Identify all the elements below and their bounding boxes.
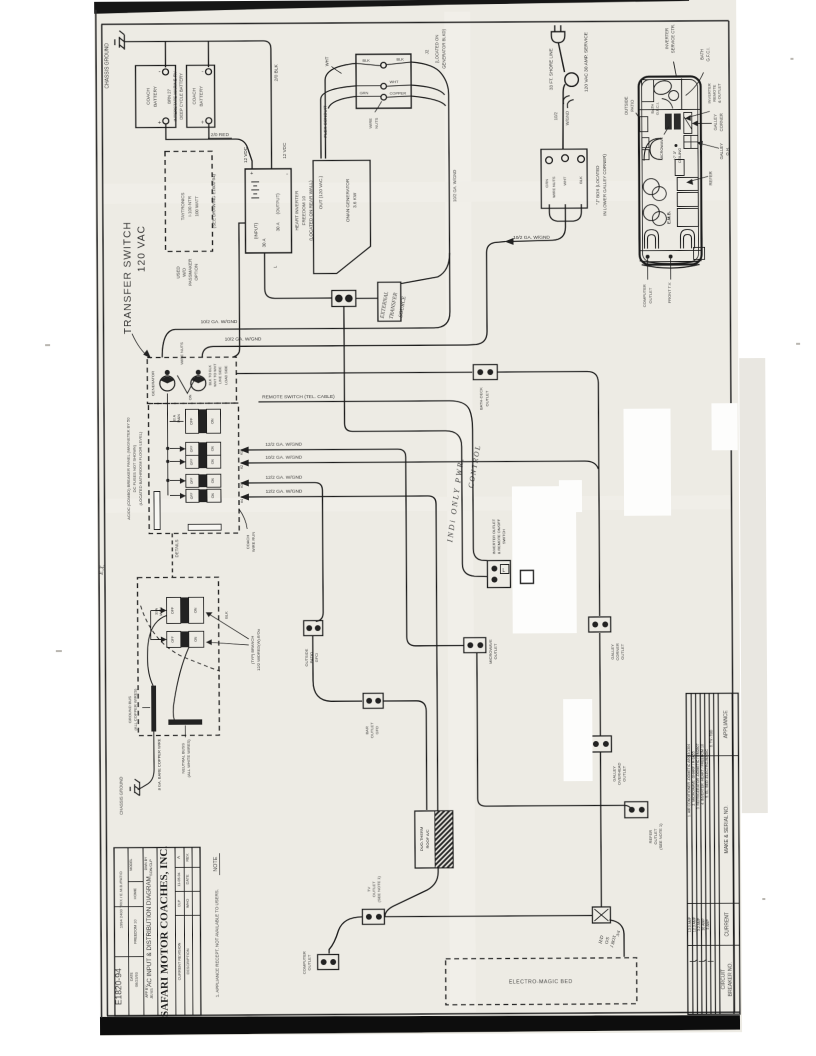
svg-text:12 VDC: 12 VDC	[282, 142, 287, 159]
svg-text:OUT (120 VAC.): OUT (120 VAC.)	[318, 175, 323, 209]
svg-text:OPTION: OPTION	[194, 264, 199, 281]
svg-text:BREAKER NO.: BREAKER NO.	[728, 962, 734, 996]
svg-text:W/GND: W/GND	[565, 111, 570, 125]
svg-text:5. EL. BED -ELECTRO-MAGIC: 5. EL. BED -ELECTRO-MAGIC	[705, 749, 709, 798]
svg-text:REFER: REFER	[708, 171, 713, 185]
svg-text:WHT: WHT	[390, 79, 400, 84]
svg-text:COACH: COACH	[245, 535, 250, 550]
svg-text:-: -	[202, 69, 204, 75]
svg-text:FRONT T.V.: FRONT T.V.	[667, 282, 672, 303]
svg-text:OUTLET: OUTLET	[620, 643, 625, 659]
svg-text:E1820-94: E1820-94	[113, 968, 123, 1005]
svg-text:#2: #2	[240, 465, 244, 469]
svg-text:& OUTLET: & OUTLET	[717, 83, 722, 103]
svg-text:+: +	[158, 120, 162, 126]
svg-text:MICROWAVE: MICROWAVE	[660, 136, 664, 160]
svg-text:DATE: DATE	[186, 874, 190, 884]
svg-text:WHT TO WHT: WHT TO WHT	[213, 363, 217, 387]
svg-text:13.0 AMP: 13.0 AMP	[688, 916, 692, 932]
svg-text:+7' 3": +7' 3"	[673, 150, 677, 160]
svg-text:O.H.: O.H.	[725, 147, 730, 156]
svg-text:INVERTER: INVERTER	[664, 28, 669, 49]
svg-text:TRANSFER SWITCH: TRANSFER SWITCH	[122, 221, 134, 334]
svg-text:(LOCATED ON: (LOCATED ON	[434, 35, 439, 63]
svg-text:NEUTRAL BUSS: NEUTRAL BUSS	[180, 743, 185, 774]
svg-text:120 VAC: 120 VAC	[136, 225, 147, 272]
svg-text:GFCI: GFCI	[314, 653, 319, 663]
svg-text:120 VAC 30 AMP. SERVICE: 120 VAC 30 AMP. SERVICE	[583, 32, 589, 92]
svg-text:DETAILS: DETAILS	[174, 539, 179, 557]
svg-text:NOTE: NOTE	[213, 856, 219, 871]
svg-text:12/2 W/DRED(W)-B'Ou: 12/2 W/DRED(W)-B'Ou	[256, 629, 261, 671]
svg-text:30 A: 30 A	[275, 222, 280, 231]
svg-text:"J" BOX (LOCATED: "J" BOX (LOCATED	[595, 166, 600, 205]
svg-text:J2: J2	[424, 49, 429, 54]
svg-text:BATH: BATH	[699, 49, 704, 60]
svg-text:G.F.C.I.: G.F.C.I.	[656, 102, 660, 115]
svg-text:30 A: 30 A	[261, 238, 266, 247]
svg-text:BLK: BLK	[578, 176, 583, 184]
svg-text:ROOF A/C: ROOF A/C	[425, 829, 430, 848]
svg-text:OUTLET: OUTLET	[648, 287, 653, 303]
svg-text:AC/DC (COMBO) BREAKER PANEL (M: AC/DC (COMBO) BREAKER PANEL (MAGNETEK BY…	[126, 417, 132, 520]
svg-text:WHT: WHT	[324, 56, 329, 66]
svg-text:FLEX CONDUIT: FLEX CONDUIT	[323, 105, 328, 138]
svg-text:PATIO: PATIO	[630, 99, 635, 112]
svg-text:OUTLET: OUTLET	[493, 643, 498, 659]
svg-text:30 A: 30 A	[155, 607, 159, 615]
svg-text:ON: ON	[211, 418, 215, 424]
svg-text:8 GA. BARE COPPER WIRE: 8 GA. BARE COPPER WIRE	[156, 738, 161, 790]
svg-text:SON/CLP: SON/CLP	[149, 859, 153, 876]
svg-text:BRN 27: BRN 27	[167, 88, 172, 103]
svg-text:PASSMAKER: PASSMAKER	[188, 259, 193, 286]
svg-text:3.2 AMP: 3.2 AMP	[697, 917, 701, 931]
svg-text:LINE SIDE: LINE SIDE	[218, 366, 222, 384]
svg-text:TAYTRONICS: TAYTRONICS	[180, 192, 185, 220]
svg-text:WIRE NUTS: WIRE NUTS	[552, 176, 556, 198]
svg-text:BLK TO BLK: BLK TO BLK	[208, 364, 212, 385]
svg-text:(SEE NOTE 1): (SEE NOTE 1)	[658, 823, 663, 850]
svg-text:INVERTER OUTLET: INVERTER OUTLET	[492, 518, 496, 554]
svg-text:SWITCH: SWITCH	[502, 529, 506, 544]
svg-text:+: +	[250, 171, 253, 177]
svg-text:(INPUT): (INPUT)	[253, 222, 258, 239]
svg-text:(TYP) BRANCH: (TYP) BRANCH	[250, 636, 255, 665]
svg-text:SERVICE CTR.: SERVICE CTR.	[670, 24, 675, 53]
svg-text:WHO: WHO	[186, 899, 190, 908]
svg-text:L: L	[502, 568, 505, 574]
svg-text:WIRE: WIRE	[368, 118, 373, 129]
svg-text:OFF: OFF	[190, 446, 194, 452]
svg-text:OUTLET: OUTLET	[307, 954, 312, 970]
svg-text:OFF: OFF	[190, 459, 194, 465]
svg-text:LOAD SIDE: LOAD SIDE	[224, 365, 228, 385]
svg-text:CLP: CLP	[177, 899, 181, 907]
svg-text:10/2 GA. W/GND: 10/2 GA. W/GND	[201, 319, 238, 325]
svg-text:REV.: REV.	[186, 853, 190, 862]
svg-text:#1: #1	[240, 451, 244, 455]
svg-text:11-05-94: 11-05-94	[177, 872, 181, 886]
svg-text:OFF: OFF	[190, 493, 194, 499]
svg-text:NUTS: NUTS	[374, 117, 379, 128]
svg-text:CURRENT REVISION: CURRENT REVISION	[178, 942, 182, 980]
svg-text:30 A: 30 A	[173, 414, 177, 422]
svg-text:5 AMP: 5 AMP	[706, 919, 710, 930]
svg-text:ON: ON	[211, 493, 215, 499]
svg-text:ON: ON	[194, 607, 198, 613]
svg-text:BATH: BATH	[651, 103, 655, 113]
svg-text:30 AMP: 30 AMP	[701, 918, 705, 931]
svg-text:HOME: HOME	[133, 887, 137, 899]
svg-text:GALLEY: GALLEY	[719, 143, 724, 160]
svg-text:& REMOTE ON/OFF: & REMOTE ON/OFF	[497, 518, 501, 554]
svg-text:10/2 GA. W/GND: 10/2 GA. W/GND	[225, 336, 262, 342]
svg-text:REMOTE SWITCH (TEL. CABLE): REMOTE SWITCH (TEL. CABLE)	[262, 394, 335, 400]
svg-text:ELECTRO-MAGIC BED: ELECTRO-MAGIC BED	[509, 979, 573, 985]
svg-text:#3: #3	[240, 484, 244, 488]
svg-text:OUTLET: OUTLET	[622, 765, 627, 781]
svg-text:BLK: BLK	[224, 611, 229, 619]
svg-text:ON: ON	[211, 478, 215, 484]
svg-text:SAFARI MOTOR COACHES, INC.: SAFARI MOTOR COACHES, INC.	[158, 846, 171, 1017]
svg-text:OFF: OFF	[190, 478, 194, 484]
svg-text:BLK: BLK	[362, 58, 370, 63]
svg-text:ON: ON	[188, 394, 192, 400]
svg-text:APPLIANCE: APPLIANCE	[723, 710, 729, 739]
svg-text:BATH-DECK: BATH-DECK	[478, 387, 483, 410]
svg-text:BATTERY: BATTERY	[199, 86, 204, 107]
svg-text:A: A	[176, 856, 181, 859]
svg-text:DUO-THERM: DUO-THERM	[419, 827, 424, 851]
svg-text:OFF: OFF	[190, 417, 194, 425]
svg-text:GFD: GFD	[374, 726, 379, 735]
svg-text:10/2: 10/2	[553, 111, 558, 120]
svg-text:ONAN GENERATOR: ONAN GENERATOR	[345, 178, 350, 222]
svg-text:3.6 KW: 3.6 KW	[352, 192, 357, 208]
svg-text:(OUTPUT): (OUTPUT)	[275, 193, 280, 215]
svg-text:ON: ON	[194, 636, 198, 642]
svg-text:JE/XS: JE/XS	[150, 988, 154, 999]
svg-text:GENERATOR BLKD): GENERATOR BLKD)	[441, 28, 446, 68]
svg-text:GENERATOR: GENERATOR	[150, 371, 155, 396]
svg-text:MODEL: MODEL	[129, 859, 133, 871]
svg-text:BLK: BLK	[396, 57, 404, 62]
svg-text:(ALL WHITE WIRES): (ALL WHITE WIRES)	[186, 739, 191, 778]
svg-text:W/O: W/O	[182, 267, 187, 276]
svg-text:-: -	[286, 172, 288, 178]
svg-text:INTERSTATE MARINE-RV: INTERSTATE MARINE-RV	[173, 71, 178, 121]
svg-text:WIRE RUN: WIRE RUN	[251, 532, 256, 552]
svg-text:12.3 AMP: 12.3 AMP	[692, 916, 696, 932]
svg-text:CURRENT: CURRENT	[724, 912, 730, 936]
svg-text:CHASSIS GROUND: CHASSIS GROUND	[104, 43, 110, 89]
svg-text:E.M.B.: E.M.B.	[666, 211, 671, 224]
svg-text:COPPER: COPPER	[390, 91, 407, 96]
svg-text:OFF: OFF	[171, 636, 175, 642]
svg-text:CHASSIS GROUND: CHASSIS GROUND	[119, 777, 124, 815]
svg-text:2/0 RED: 2/0 RED	[211, 132, 230, 138]
svg-text:2/0 BLK: 2/0 BLK	[273, 63, 279, 81]
svg-text:APP BY: APP BY	[145, 985, 149, 998]
svg-text:FREEDOM 10: FREEDOM 10	[301, 196, 306, 226]
svg-text:WHT: WHT	[562, 176, 567, 186]
svg-text:DESCRIPTION: DESCRIPTION	[186, 948, 190, 974]
svg-text:33 FT. SHORE LINE: 33 FT. SHORE LINE	[548, 48, 553, 90]
svg-text:COACH: COACH	[146, 88, 151, 105]
svg-text:ON: ON	[211, 459, 215, 465]
svg-text:DWN BY: DWN BY	[144, 856, 148, 870]
svg-text:COMPUTER: COMPUTER	[642, 284, 647, 307]
svg-text:I-100-NTR: I-100-NTR	[187, 196, 192, 217]
svg-text:100 WATT: 100 WATT	[194, 196, 199, 217]
svg-text:(SEE NOTE 1): (SEE NOTE 1)	[376, 875, 381, 902]
svg-text:OUTSIDE: OUTSIDE	[624, 96, 629, 115]
svg-text:G.F.C.I.: G.F.C.I.	[705, 47, 710, 61]
svg-text:OUTLET: OUTLET	[484, 390, 489, 406]
svg-text:IN LOWER GALLEY CORNER): IN LOWER GALLEY CORNER)	[602, 154, 607, 216]
svg-text:HEART INVERTER: HEART INVERTER	[294, 190, 299, 231]
svg-text:FREEDOM 10: FREEDOM 10	[133, 920, 137, 944]
svg-text:6. TV -TBD: 6. TV -TBD	[709, 729, 713, 747]
svg-text:#4: #4	[240, 499, 244, 503]
svg-text:BATTERY: BATTERY	[153, 86, 158, 107]
svg-text:WIRE NUTS: WIRE NUTS	[179, 342, 184, 365]
svg-text:CIRCUIT: CIRCUIT	[721, 969, 727, 989]
svg-text:10/2 GA. W/GND: 10/2 GA. W/GND	[265, 455, 302, 461]
svg-text:+: +	[201, 120, 205, 126]
svg-text:12 VDC: 12 VDC	[243, 146, 248, 163]
svg-text:DC FUSES NOT SHOWN): DC FUSES NOT SHOWN)	[132, 444, 137, 492]
svg-text:GROUND BUS: GROUND BUS	[127, 696, 132, 723]
svg-text:MAKE & SERIAL NO.: MAKE & SERIAL NO.	[724, 805, 730, 853]
svg-text:1. APPLIANCE RECEPT. NOT AVAIL: 1. APPLIANCE RECEPT. NOT AVAILABLE TO US…	[214, 889, 220, 997]
svg-text:CEILING: CEILING	[678, 148, 682, 163]
svg-text:ON: ON	[211, 446, 215, 452]
svg-text:CORNER: CORNER	[719, 113, 724, 131]
svg-text:(LOCATED BATHROOM FLOOR LEVEL): (LOCATED BATHROOM FLOOR LEVEL)	[138, 431, 143, 505]
svg-text:10/2 GA. W/GND: 10/2 GA. W/GND	[513, 235, 550, 241]
svg-text:(ALL COPPER WIRES): (ALL COPPER WIRES)	[133, 688, 138, 731]
svg-text:08/23/93: 08/23/93	[135, 972, 139, 987]
svg-text:12/2 GA. W/GND: 12/2 GA. W/GND	[265, 475, 302, 481]
svg-text:DEEP CYCLE BATTERY: DEEP CYCLE BATTERY	[179, 73, 184, 120]
svg-text:12/2 GA. W/GND: 12/2 GA. W/GND	[265, 442, 302, 448]
svg-text:COACH: COACH	[192, 88, 197, 105]
svg-text:1994 2400 TRIX / E.M.B./PATIO: 1994 2400 TRIX / E.M.B./PATIO	[118, 871, 123, 928]
svg-text:10/2 GA. W/GND: 10/2 GA. W/GND	[452, 170, 457, 202]
svg-text:USED: USED	[176, 266, 181, 278]
svg-text:DATE: DATE	[130, 972, 134, 982]
svg-text:GRN: GRN	[544, 179, 549, 188]
svg-text:GALLEY: GALLEY	[713, 114, 718, 131]
svg-text:12/2 GA. W/GND: 12/2 GA. W/GND	[266, 489, 303, 495]
svg-text:AC INPUT & DISTRIBUTION DIAGRA: AC INPUT & DISTRIBUTION DIAGRAM	[146, 876, 154, 987]
svg-text:GRN: GRN	[360, 90, 369, 95]
svg-text:(SEE DRAWING E1600-94): (SEE DRAWING E1600-94)	[211, 174, 216, 229]
svg-text:-: -	[159, 69, 161, 75]
svg-text:OFF: OFF	[171, 606, 175, 614]
